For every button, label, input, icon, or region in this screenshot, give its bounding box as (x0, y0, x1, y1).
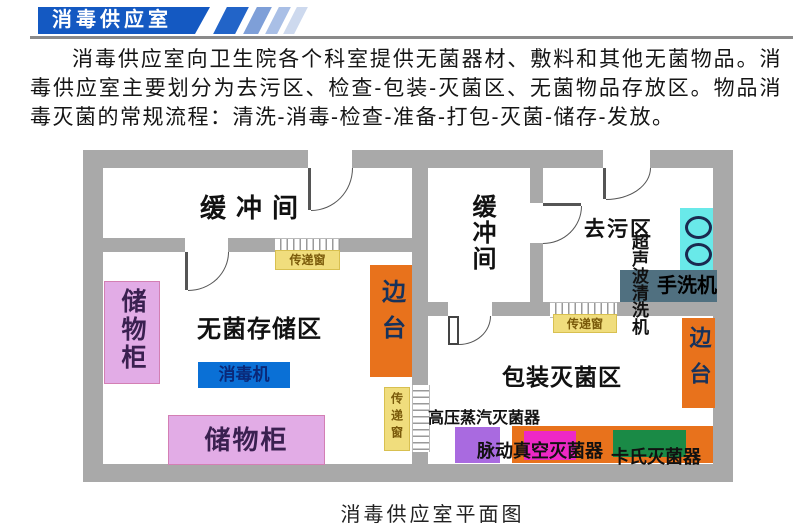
figure-caption: 消毒供应室平面图 (60, 498, 800, 527)
wall-left-horizontal (103, 238, 412, 252)
sink-unit (680, 208, 713, 272)
door-swing-arc (543, 206, 582, 244)
title-banner: 消毒供应室 (38, 7, 210, 34)
door-swing-arc (459, 316, 491, 345)
door-leaf (448, 316, 459, 345)
wall-right (713, 150, 733, 482)
cassette-sterilizer-label: 卡氏灭菌器 (611, 443, 701, 469)
sink-basin-icon (685, 216, 712, 239)
door-swing-arc (606, 168, 651, 200)
ultrasonic-cleaner-label: 超声波清洗机 (626, 233, 651, 335)
intro-paragraph: 消毒供应室向卫生院各个科室提供无菌器材、敷料和其他无菌物品。消毒供应室主要划分为… (30, 45, 782, 132)
pass-window-left-label: 传递窗 (276, 251, 339, 270)
door-opening (185, 238, 228, 252)
door-swing-arc (188, 252, 229, 291)
storage-cabinet-left-label: 储物柜 (114, 288, 150, 372)
door-opening (448, 302, 492, 316)
storage-cabinet-left: 储物柜 (104, 281, 160, 384)
pulse-vacuum-sterilizer-label: 脉动真空灭菌器 (477, 437, 603, 463)
sink-basin-icon (685, 243, 712, 266)
pass-window-right: 传递窗 (553, 314, 617, 333)
banner-stripe-icon (213, 7, 249, 34)
side-table-right: 边台 (682, 318, 715, 408)
side-table-right-label: 边台 (683, 326, 715, 398)
pass-window-left: 传递窗 (275, 250, 340, 270)
room-label-buffer-mid: 缓冲间 (464, 194, 499, 272)
door-swing-arc (311, 168, 353, 211)
storage-cabinet-bottom-label: 储物柜 (169, 416, 324, 464)
autoclave-label: 高压蒸汽灭菌器 (428, 404, 540, 428)
room-label-packaging-sterilization: 包装灭菌区 (502, 358, 622, 392)
room-label-sterile-storage: 无菌存储区 (197, 309, 322, 344)
header-divider (30, 36, 793, 39)
disinfector-box: 消毒机 (198, 362, 290, 388)
wall-left (83, 150, 103, 482)
pass-window-right-label: 传递窗 (554, 315, 616, 333)
pass-window-mid-label: 传递窗 (389, 392, 406, 443)
storage-cabinet-bottom: 储物柜 (168, 415, 325, 465)
side-table-left-label: 边台 (374, 279, 409, 351)
door-opening (308, 150, 352, 168)
room-label-buffer-left: 缓冲间 (200, 188, 308, 225)
document-page: 消毒供应室 消毒供应室向卫生院各个科室提供无菌器材、敷料和其他无菌物品。消毒供应… (0, 0, 800, 531)
page-title: 消毒供应室 (38, 7, 210, 34)
pass-window-mid: 传递窗 (384, 387, 410, 451)
disinfector-label: 消毒机 (198, 362, 290, 388)
side-table-left: 边台 (370, 265, 412, 377)
door-opening (530, 203, 543, 243)
door-opening (603, 150, 650, 168)
